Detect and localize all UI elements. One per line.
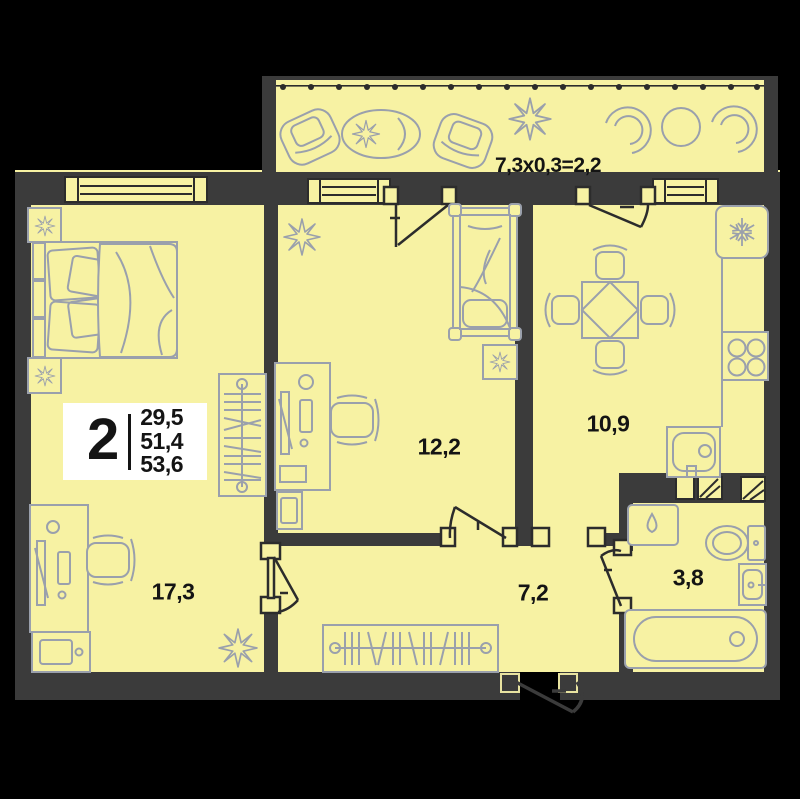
- left-wall: [15, 172, 31, 700]
- hallway-furniture: [323, 625, 498, 672]
- wardrobe-icon: [219, 374, 266, 496]
- apartment-info-box: 2 29,5 51,4 53,6: [63, 403, 207, 480]
- floor-plan-drawing: [0, 0, 800, 799]
- area-total: 53,6: [140, 453, 183, 476]
- balcony-right-wall: [764, 76, 778, 178]
- rooms-count: 2: [87, 411, 119, 469]
- plant-star-icon: [353, 121, 380, 148]
- desk-icon: [275, 363, 330, 490]
- room-area-label-bathroom: 3,8: [673, 565, 703, 592]
- info-divider: [128, 414, 131, 470]
- balcony-area-label: 7,3x0,3=2,2: [495, 154, 601, 178]
- room-area-label-room: 12,2: [418, 434, 461, 461]
- bedroom-window: [65, 177, 207, 202]
- plant-star-icon: [219, 629, 257, 667]
- balcony-window-left: [308, 179, 390, 203]
- plant-star-icon: [284, 219, 320, 255]
- balcony-left-wall: [262, 76, 276, 178]
- round-table-icon: [662, 108, 700, 146]
- plant-star-icon: [490, 352, 510, 372]
- kitchen-sink-icon: [667, 427, 720, 477]
- double-bed-icon: [33, 242, 177, 358]
- washing-machine-icon: [628, 505, 678, 545]
- stove-icon: [722, 332, 768, 380]
- balcony-top-wall: [262, 76, 768, 80]
- desk-icon: [30, 505, 88, 632]
- plant-star-icon: [35, 366, 55, 386]
- room-area-label-kitchen: 10,9: [587, 411, 630, 438]
- toilet-icon: [706, 526, 765, 560]
- floor-plan: 7,3x0,3=2,2 17,3 12,2 10,9 7,2 3,8 2 29,…: [0, 0, 800, 799]
- single-bed-icon: [449, 204, 521, 340]
- vent-shafts: [676, 477, 765, 501]
- room-area-label-hallway: 7,2: [518, 580, 548, 607]
- bathroom-sink-icon: [739, 564, 766, 605]
- fridge-icon: [716, 206, 768, 258]
- balcony-window-right: [653, 179, 718, 203]
- plant-star-icon: [509, 98, 550, 139]
- hall-wardrobe-icon: [323, 625, 498, 672]
- side-table-icon: [277, 492, 302, 529]
- area-apartment: 51,4: [140, 430, 183, 453]
- room-area-label-bedroom: 17,3: [152, 579, 195, 606]
- side-table-icon: [32, 632, 90, 672]
- plant-star-icon: [35, 216, 55, 236]
- bathtub-icon: [625, 610, 766, 668]
- area-living: 29,5: [140, 406, 183, 429]
- bottom-wall: [15, 672, 780, 700]
